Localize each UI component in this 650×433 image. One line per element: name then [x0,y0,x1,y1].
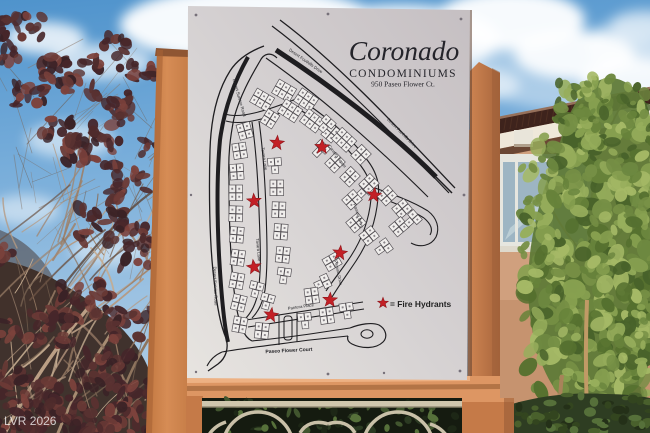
svg-text:= Fire Hydrants: = Fire Hydrants [390,299,452,309]
svg-text:LVR 2026: LVR 2026 [4,414,57,428]
svg-text:950 Paseo Flower Ct.: 950 Paseo Flower Ct. [371,80,435,89]
svg-text:CONDOMINIUMS: CONDOMINIUMS [349,68,457,80]
svg-text:Coronado: Coronado [349,35,460,66]
